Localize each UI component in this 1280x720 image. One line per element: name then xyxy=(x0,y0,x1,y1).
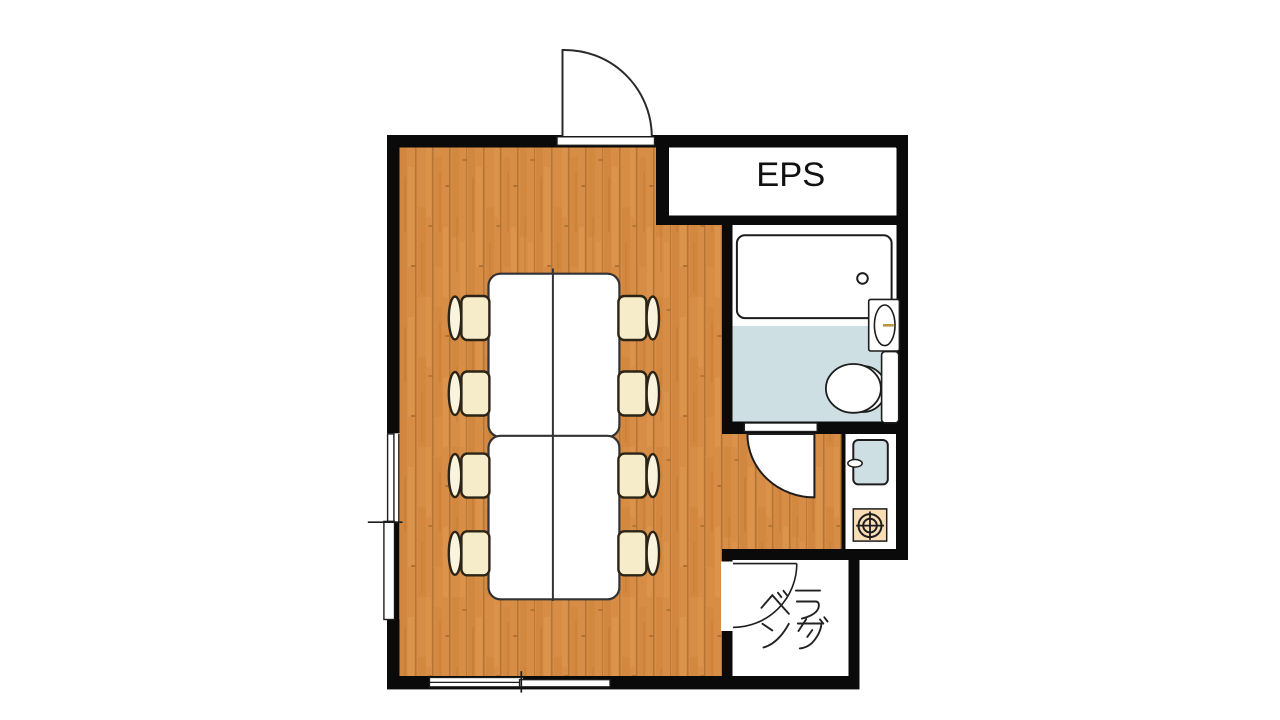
svg-text:EPS: EPS xyxy=(756,156,825,194)
